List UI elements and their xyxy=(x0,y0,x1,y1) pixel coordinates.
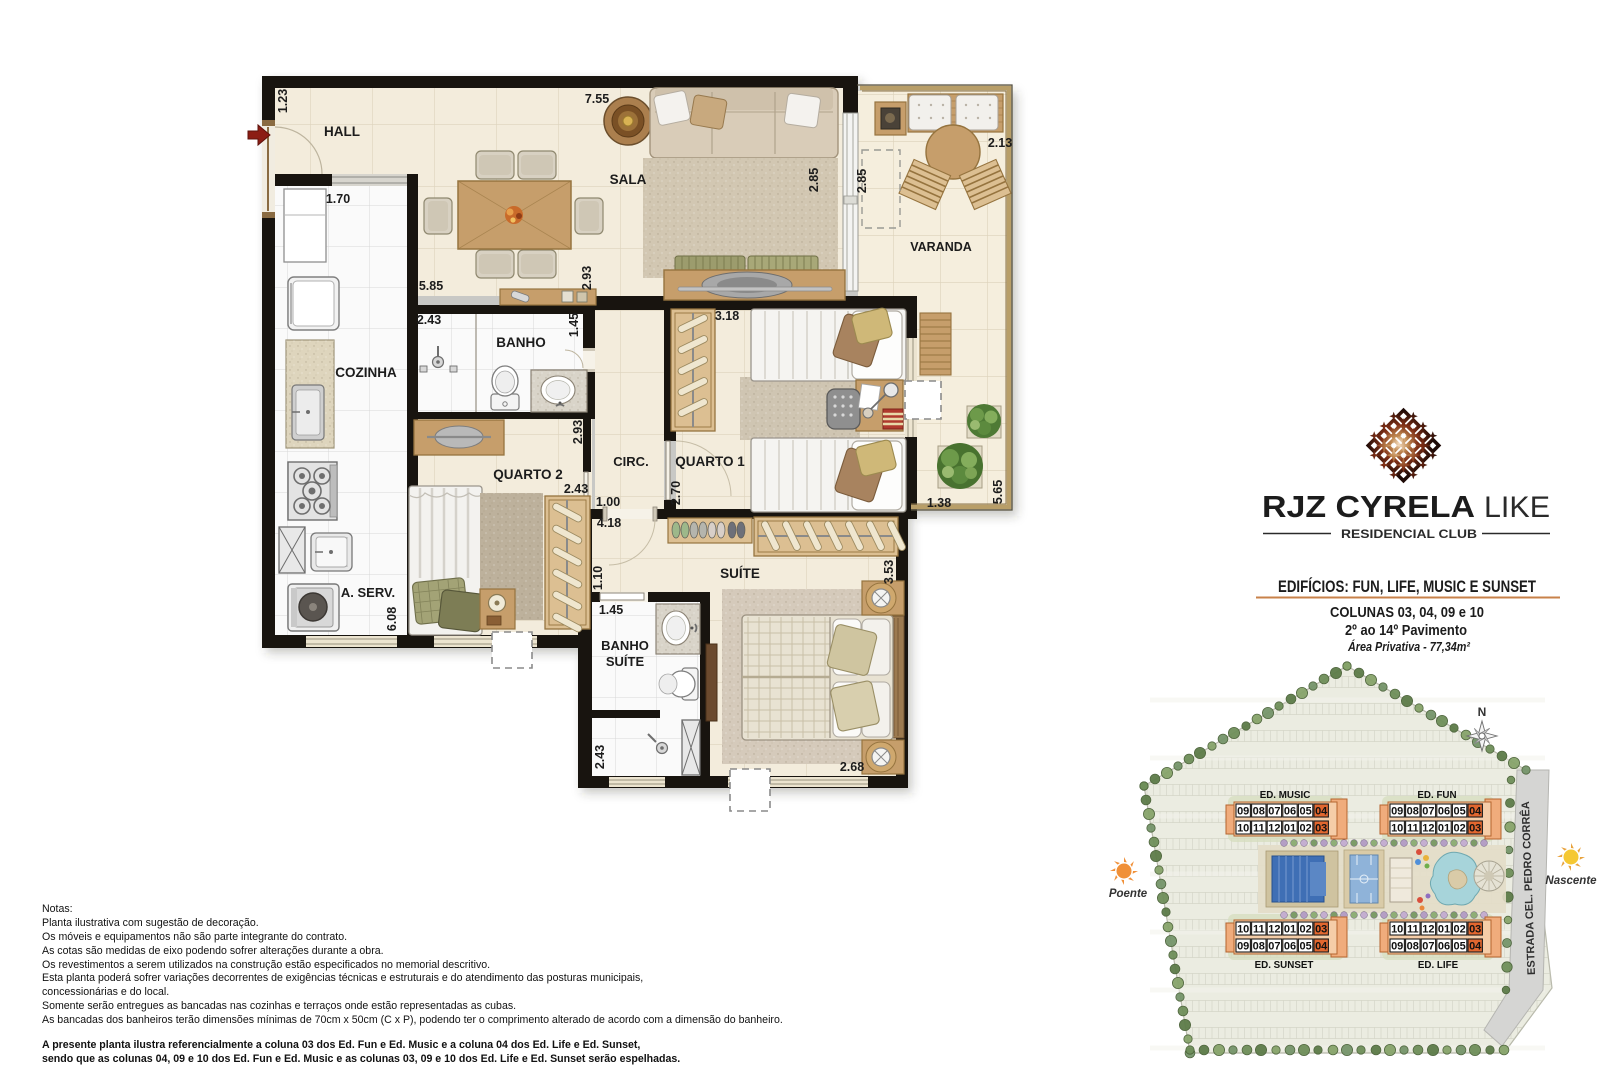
svg-text:RJZ CYRELA: RJZ CYRELA xyxy=(1262,489,1475,524)
svg-text:09: 09 xyxy=(1237,941,1249,953)
svg-text:1.70: 1.70 xyxy=(326,192,350,206)
svg-text:2.43: 2.43 xyxy=(417,313,441,327)
svg-text:2.43: 2.43 xyxy=(564,482,588,496)
svg-text:BANHO: BANHO xyxy=(601,638,649,653)
svg-text:04: 04 xyxy=(1315,806,1328,818)
svg-text:QUARTO 1: QUARTO 1 xyxy=(675,454,745,469)
svg-text:09: 09 xyxy=(1391,806,1403,818)
svg-text:VARANDA: VARANDA xyxy=(910,240,972,254)
svg-text:Somente serão entregues as ban: Somente serão entregues as bancadas nas … xyxy=(42,1000,516,1012)
svg-text:concessionárias e do local.: concessionárias e do local. xyxy=(42,986,169,998)
svg-text:ED. SUNSET: ED. SUNSET xyxy=(1255,960,1314,971)
svg-text:01: 01 xyxy=(1438,823,1450,835)
svg-text:4.18: 4.18 xyxy=(597,516,621,530)
svg-text:09: 09 xyxy=(1237,806,1249,818)
svg-text:05: 05 xyxy=(1299,806,1311,818)
svg-text:Área Privativa - 77,34m²: Área Privativa - 77,34m² xyxy=(1347,639,1470,654)
svg-text:ED. LIFE: ED. LIFE xyxy=(1418,960,1459,971)
svg-text:1.45: 1.45 xyxy=(599,603,623,617)
svg-text:As bancadas dos banheiros terã: As bancadas dos banheiros terão dimensõe… xyxy=(42,1014,783,1026)
svg-text:11: 11 xyxy=(1407,924,1419,936)
svg-text:Notas:: Notas: xyxy=(42,903,73,915)
svg-text:SUÍTE: SUÍTE xyxy=(606,654,645,669)
svg-text:12: 12 xyxy=(1422,823,1434,835)
svg-text:12: 12 xyxy=(1268,924,1280,936)
svg-text:08: 08 xyxy=(1407,941,1419,953)
svg-text:A presente planta ilustra refe: A presente planta ilustra referencialmen… xyxy=(42,1039,640,1051)
svg-text:04: 04 xyxy=(1469,806,1482,818)
svg-text:07: 07 xyxy=(1422,941,1434,953)
svg-text:01: 01 xyxy=(1284,924,1296,936)
svg-text:3.18: 3.18 xyxy=(715,309,739,323)
svg-text:06: 06 xyxy=(1438,806,1450,818)
svg-text:05: 05 xyxy=(1453,941,1465,953)
svg-text:CIRC.: CIRC. xyxy=(613,454,648,469)
svg-text:1.10: 1.10 xyxy=(591,566,605,590)
svg-text:2.93: 2.93 xyxy=(571,420,585,444)
svg-text:A. SERV.: A. SERV. xyxy=(341,585,395,600)
svg-text:Planta ilustrativa com sugestã: Planta ilustrativa com sugestão de decor… xyxy=(42,917,259,929)
svg-text:2.85: 2.85 xyxy=(807,168,821,192)
svg-text:BANHO: BANHO xyxy=(496,335,546,350)
svg-text:02: 02 xyxy=(1299,924,1311,936)
svg-text:12: 12 xyxy=(1422,924,1434,936)
svg-text:01: 01 xyxy=(1284,823,1296,835)
svg-text:N: N xyxy=(1478,705,1487,719)
svg-text:1.38: 1.38 xyxy=(927,496,951,510)
svg-text:02: 02 xyxy=(1299,823,1311,835)
svg-text:1.00: 1.00 xyxy=(596,495,620,509)
svg-text:03: 03 xyxy=(1469,823,1481,835)
svg-text:08: 08 xyxy=(1407,806,1419,818)
svg-text:11: 11 xyxy=(1253,924,1265,936)
svg-text:6.08: 6.08 xyxy=(385,607,399,631)
svg-text:ED. FUN: ED. FUN xyxy=(1417,790,1456,801)
svg-text:2.70: 2.70 xyxy=(669,481,683,505)
svg-text:10: 10 xyxy=(1237,924,1249,936)
svg-text:04: 04 xyxy=(1469,941,1482,953)
svg-text:10: 10 xyxy=(1391,823,1403,835)
svg-text:2.68: 2.68 xyxy=(840,760,864,774)
svg-text:3.53: 3.53 xyxy=(882,560,896,584)
svg-text:Poente: Poente xyxy=(1109,888,1148,900)
svg-text:11: 11 xyxy=(1253,823,1265,835)
svg-text:SUÍTE: SUÍTE xyxy=(720,566,760,581)
svg-text:2.85: 2.85 xyxy=(855,169,869,193)
svg-text:01: 01 xyxy=(1438,924,1450,936)
svg-text:QUARTO 2: QUARTO 2 xyxy=(493,467,563,482)
svg-text:SALA: SALA xyxy=(610,172,647,187)
svg-text:1.45: 1.45 xyxy=(567,313,581,337)
svg-text:10: 10 xyxy=(1237,823,1249,835)
svg-text:03: 03 xyxy=(1315,924,1327,936)
svg-text:2.13: 2.13 xyxy=(988,136,1012,150)
svg-text:07: 07 xyxy=(1422,806,1434,818)
svg-text:09: 09 xyxy=(1391,941,1403,953)
svg-text:2º ao 14º Pavimento: 2º ao 14º Pavimento xyxy=(1345,622,1467,639)
svg-text:08: 08 xyxy=(1253,806,1265,818)
svg-text:As cotas são medidas de eix: As cotas são medidas de eixo podendo sof… xyxy=(42,945,384,957)
svg-text:Os revestimentos a serem utili: Os revestimentos a serem utilizados na c… xyxy=(42,959,490,971)
svg-text:7.55: 7.55 xyxy=(585,92,609,106)
svg-text:03: 03 xyxy=(1469,924,1481,936)
svg-text:ED. MUSIC: ED. MUSIC xyxy=(1260,790,1311,801)
svg-text:12: 12 xyxy=(1268,823,1280,835)
svg-text:COLUNAS 03, 04, 09 e 10: COLUNAS 03, 04, 09 e 10 xyxy=(1330,604,1484,621)
svg-text:11: 11 xyxy=(1407,823,1419,835)
svg-text:07: 07 xyxy=(1268,941,1280,953)
svg-text:2.93: 2.93 xyxy=(580,266,594,290)
svg-text:05: 05 xyxy=(1299,941,1311,953)
svg-text:COZINHA: COZINHA xyxy=(335,365,397,380)
svg-text:06: 06 xyxy=(1438,941,1450,953)
svg-text:sendo que as colunas 04, 09 e: sendo que as colunas 04, 09 e 10 dos Ed.… xyxy=(42,1053,680,1065)
svg-text:08: 08 xyxy=(1253,941,1265,953)
svg-text:02: 02 xyxy=(1453,924,1465,936)
svg-text:04: 04 xyxy=(1315,941,1328,953)
svg-text:Nascente: Nascente xyxy=(1545,875,1597,887)
svg-text:2.43: 2.43 xyxy=(593,745,607,769)
svg-text:1.23: 1.23 xyxy=(276,89,290,113)
svg-text:06: 06 xyxy=(1284,941,1296,953)
svg-text:03: 03 xyxy=(1315,823,1327,835)
svg-text:5.85: 5.85 xyxy=(419,279,443,293)
svg-text:HALL: HALL xyxy=(324,124,360,139)
svg-text:EDIFÍCIOS: FUN, LIFE, MUSIC E: EDIFÍCIOS: FUN, LIFE, MUSIC E SUNSET xyxy=(1278,577,1536,596)
svg-text:10: 10 xyxy=(1391,924,1403,936)
svg-text:05: 05 xyxy=(1453,806,1465,818)
svg-text:07: 07 xyxy=(1268,806,1280,818)
svg-text:5.65: 5.65 xyxy=(991,480,1005,504)
svg-text:06: 06 xyxy=(1284,806,1296,818)
svg-text:Esta planta poderá sofrer vari: Esta planta poderá sofrer variações deco… xyxy=(42,972,643,984)
svg-text:LIKE: LIKE xyxy=(1484,491,1550,524)
svg-text:Os móveis e equipamentos não s: Os móveis e equipamentos não são parte i… xyxy=(42,931,347,943)
svg-text:RESIDENCIAL CLUB: RESIDENCIAL CLUB xyxy=(1341,529,1477,541)
svg-text:02: 02 xyxy=(1453,823,1465,835)
